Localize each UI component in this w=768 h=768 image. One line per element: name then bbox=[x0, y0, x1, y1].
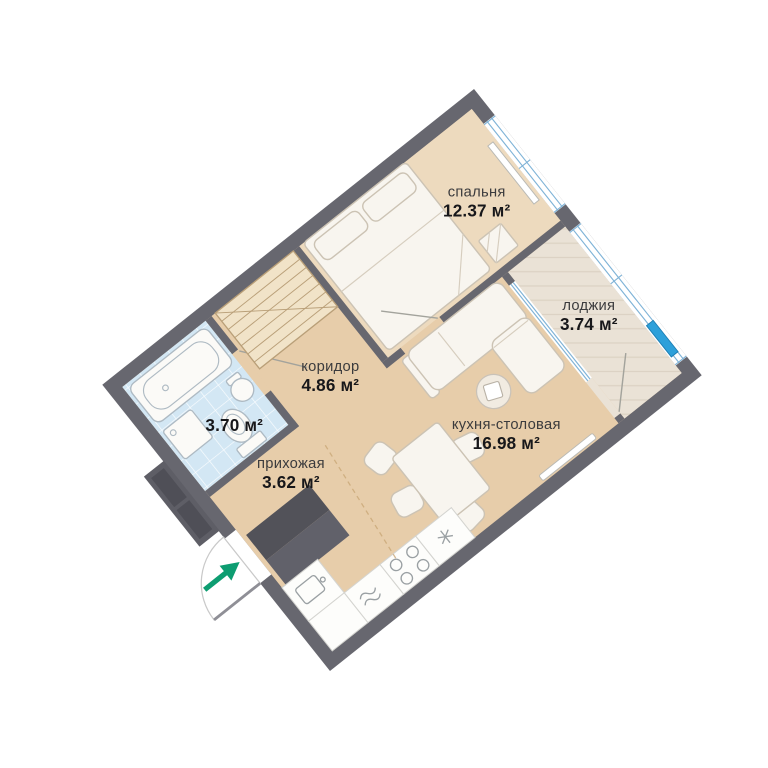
svg-text:3.70 м²: 3.70 м² bbox=[205, 416, 263, 435]
loggia-label: лоджия 3.74 м² bbox=[560, 298, 618, 334]
svg-text:3.74 м²: 3.74 м² bbox=[560, 315, 618, 334]
bedroom-label: спальня 12.37 м² bbox=[443, 185, 511, 221]
svg-text:спальня: спальня bbox=[448, 185, 506, 201]
svg-text:кухня-столовая: кухня-столовая bbox=[452, 417, 561, 433]
svg-text:4.86 м²: 4.86 м² bbox=[302, 376, 360, 395]
floor-plan-canvas: спальня 12.37 м² лоджия 3.74 м² коридор … bbox=[0, 0, 768, 768]
svg-text:прихожая: прихожая bbox=[257, 456, 325, 472]
svg-text:коридор: коридор bbox=[301, 359, 359, 375]
hallway-label: прихожая 3.62 м² bbox=[257, 456, 325, 492]
corridor-label: коридор 4.86 м² bbox=[301, 359, 359, 395]
svg-text:16.98 м²: 16.98 м² bbox=[473, 434, 541, 453]
bathroom-label: 3.70 м² bbox=[205, 416, 263, 435]
floor-plan: спальня 12.37 м² лоджия 3.74 м² коридор … bbox=[0, 0, 768, 768]
svg-text:12.37 м²: 12.37 м² bbox=[443, 201, 511, 220]
svg-text:лоджия: лоджия bbox=[562, 298, 615, 314]
svg-text:3.62 м²: 3.62 м² bbox=[262, 473, 320, 492]
